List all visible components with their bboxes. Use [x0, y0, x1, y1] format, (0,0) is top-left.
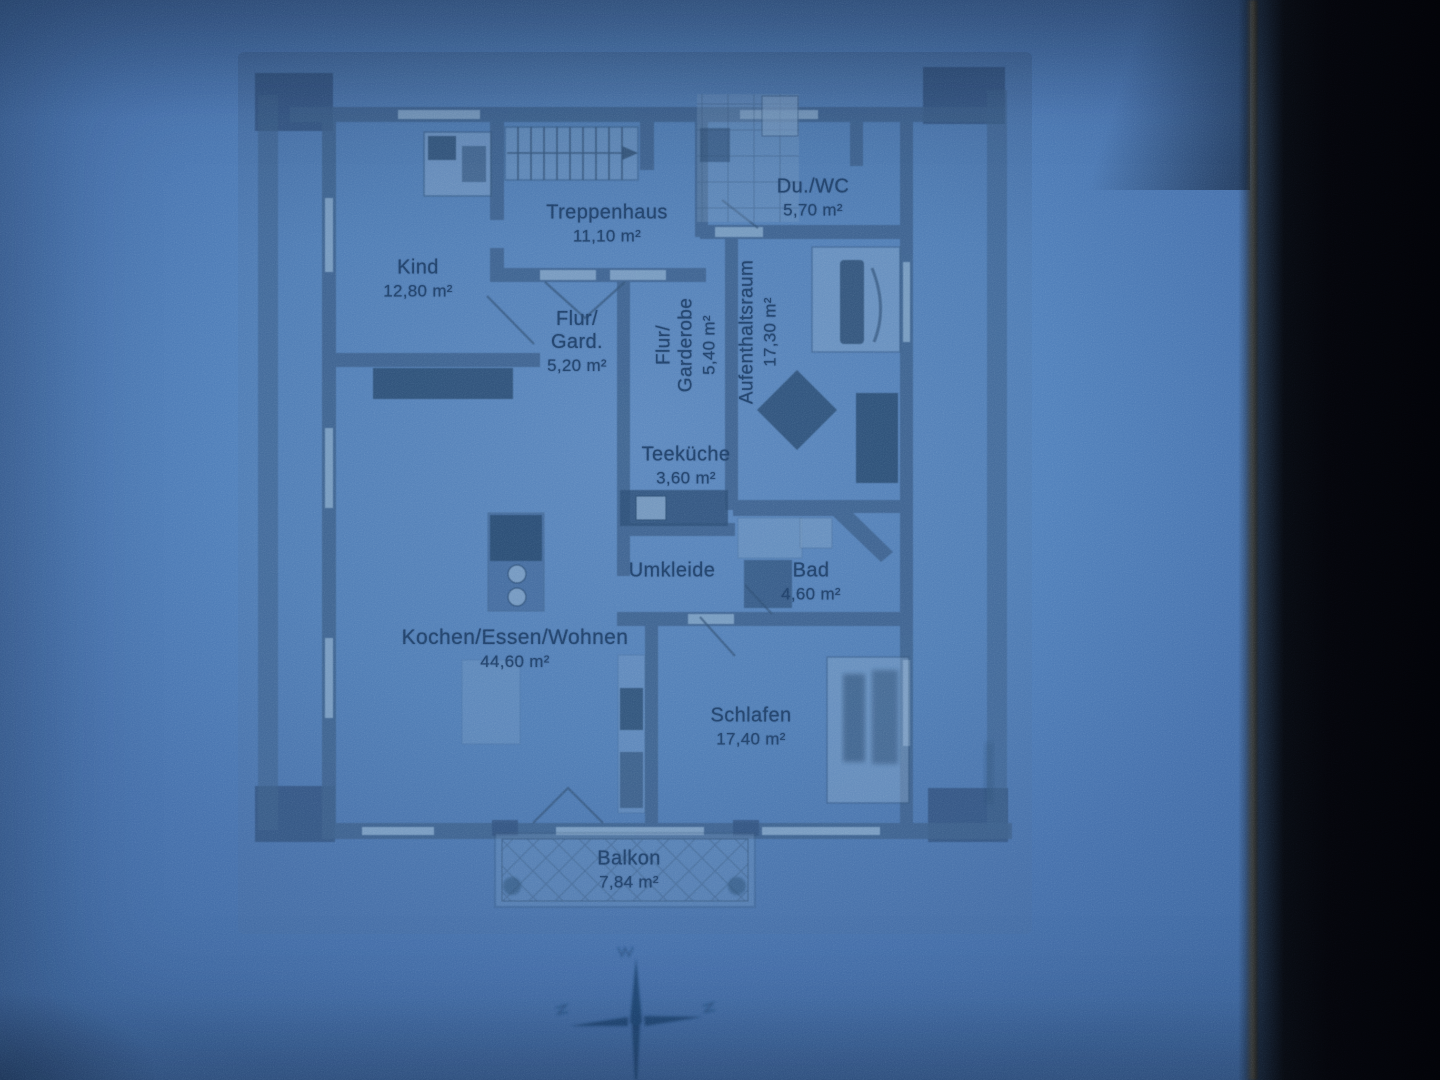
compass-rose-icon	[556, 947, 715, 1080]
shower-tiles	[697, 94, 799, 222]
floorplan-drawing	[0, 0, 1440, 1080]
floorplan-photo: Treppenhaus 11,10 m² Du./WC 5,70 m² Kind…	[0, 0, 1440, 1080]
balcony-deck	[492, 820, 759, 907]
stairs-icon	[505, 127, 638, 180]
